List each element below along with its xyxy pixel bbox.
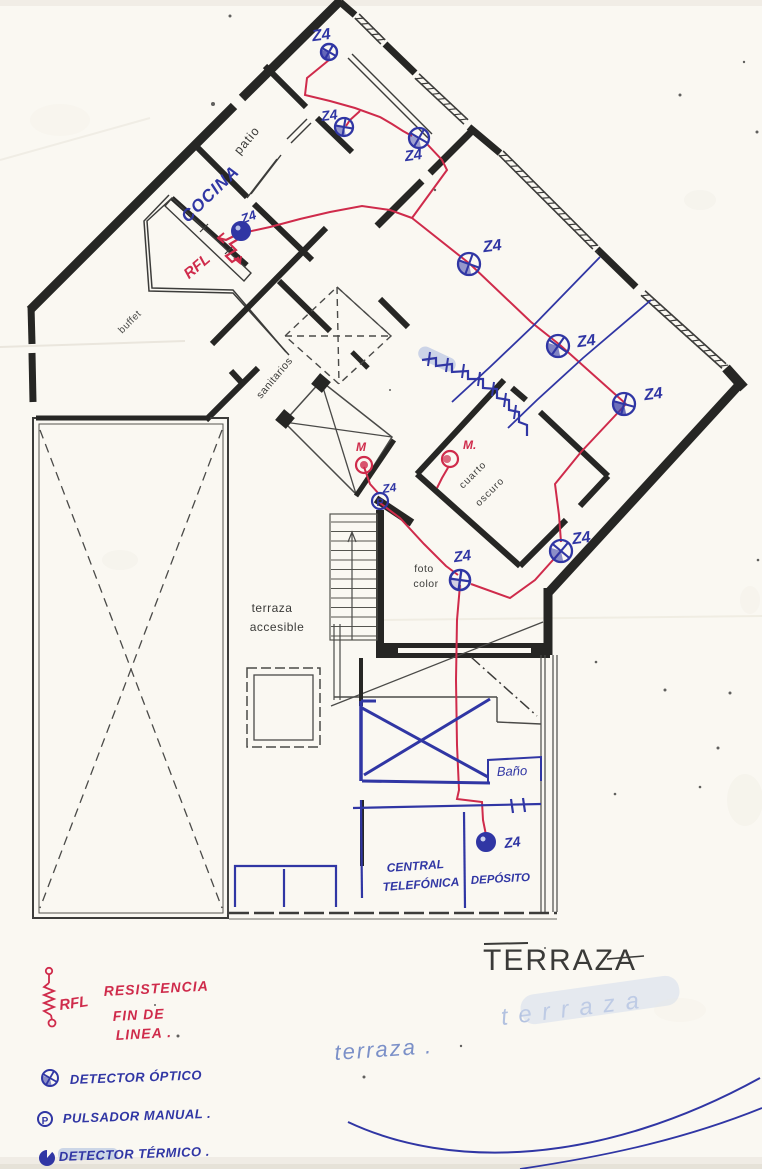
svg-text:Z4: Z4 <box>381 480 398 496</box>
svg-text:Z4: Z4 <box>502 833 522 851</box>
svg-text:Z4: Z4 <box>575 332 597 352</box>
svg-text:accesible: accesible <box>250 620 305 634</box>
svg-text:P: P <box>376 497 383 509</box>
svg-text:Z4: Z4 <box>481 237 503 257</box>
svg-text:FIN DE: FIN DE <box>112 1005 165 1024</box>
svg-text:Baño: Baño <box>497 763 528 779</box>
svg-text:Z4: Z4 <box>403 146 424 166</box>
svg-text:M: M <box>356 440 367 454</box>
svg-text:M.: M. <box>463 438 476 452</box>
svg-text:Z4: Z4 <box>570 529 592 549</box>
svg-text:Z4: Z4 <box>642 385 664 405</box>
svg-text:color: color <box>413 578 438 590</box>
svg-text:TERRAZA: TERRAZA <box>483 944 637 977</box>
svg-text:Z4: Z4 <box>310 26 332 46</box>
svg-text:terraza: terraza <box>252 601 293 615</box>
svg-text:foto: foto <box>414 563 434 575</box>
svg-text:P: P <box>42 1116 49 1127</box>
svg-text:Z4: Z4 <box>452 547 473 567</box>
svg-text:LINEA .: LINEA . <box>115 1024 172 1043</box>
svg-text:Z4: Z4 <box>319 106 339 124</box>
